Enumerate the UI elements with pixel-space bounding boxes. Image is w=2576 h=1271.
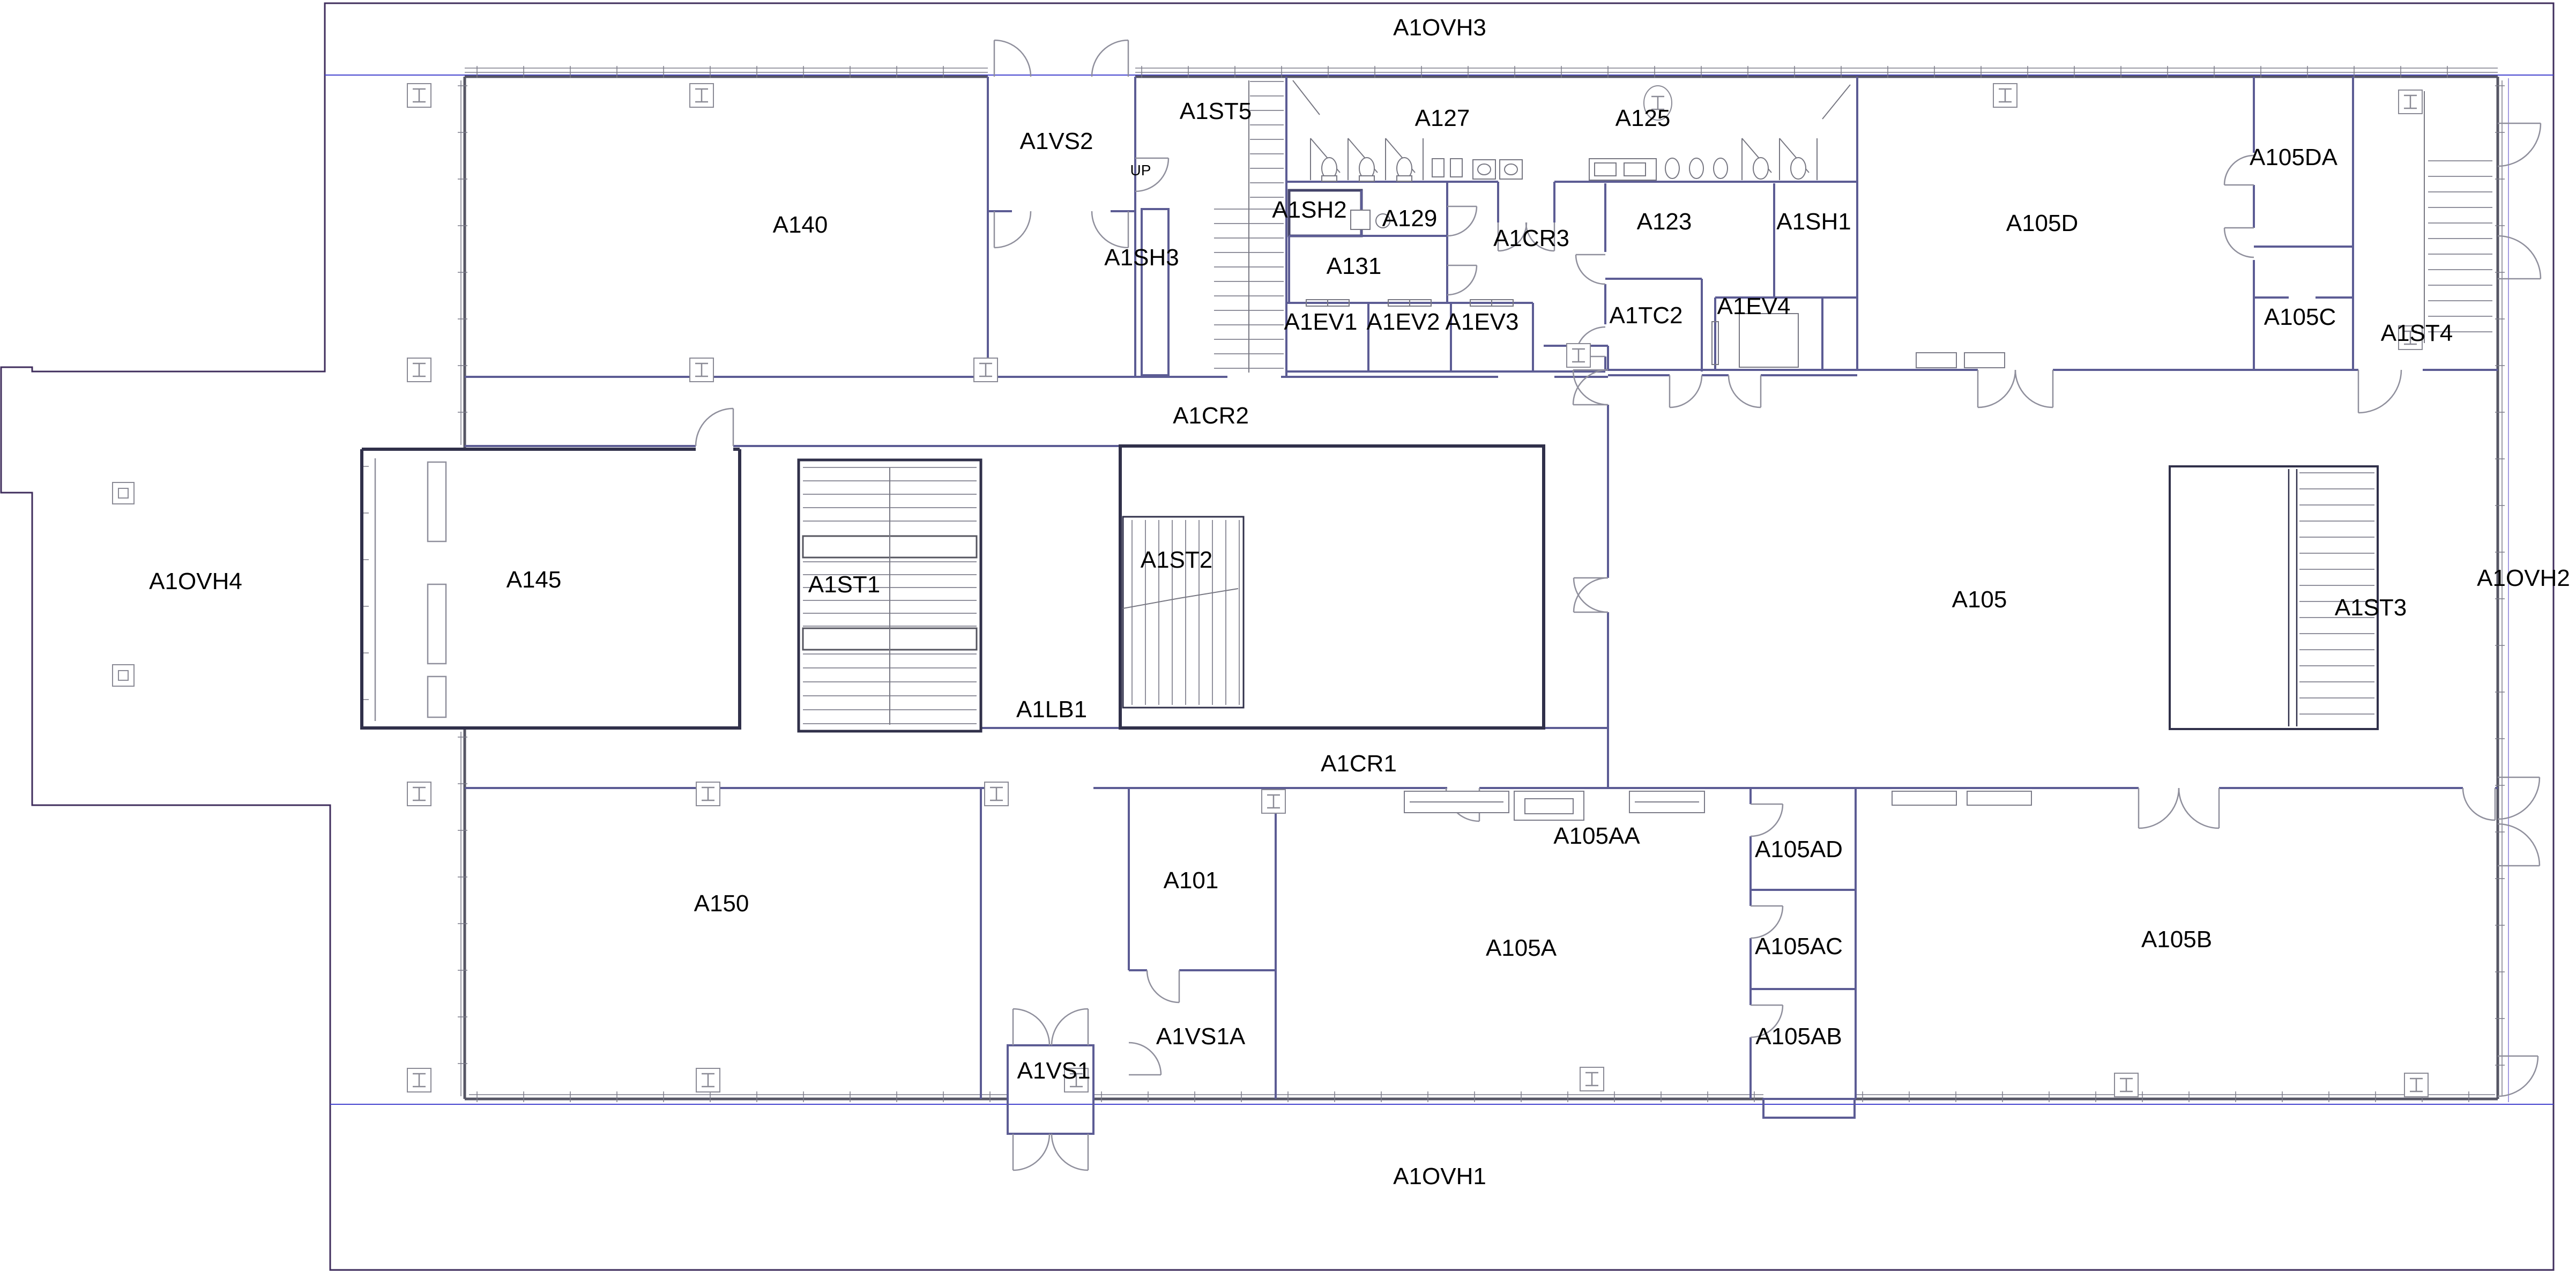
- room-label-a1sh2: A1SH2: [1272, 198, 1346, 222]
- room-label-a105b: A105B: [2141, 928, 2212, 952]
- center-block-outline: [1120, 446, 1544, 728]
- room-label-a129: A129: [1382, 207, 1438, 231]
- room-label-a1ev1: A1EV1: [1284, 310, 1358, 334]
- room-label-a1sh1: A1SH1: [1776, 210, 1851, 234]
- room-label-a125: A125: [1615, 107, 1671, 130]
- floor-plan-drawing: [0, 0, 2576, 1271]
- room-label-a1ev4: A1EV4: [1717, 295, 1791, 318]
- room-label-a1st5: A1ST5: [1180, 100, 1252, 123]
- door-swings: [696, 40, 2541, 1170]
- room-label-a105d: A105D: [2006, 212, 2079, 235]
- room-label-a1cr1: A1CR1: [1321, 752, 1397, 776]
- room-label-a140: A140: [773, 213, 828, 237]
- room-label-a1tc2: A1TC2: [1610, 304, 1683, 328]
- room-label-a1st4: A1ST4: [2381, 322, 2453, 345]
- room-label-a105da: A105DA: [2250, 146, 2337, 169]
- room-label-a105c: A105C: [2264, 306, 2336, 329]
- room-label-a105a: A105A: [1486, 936, 1557, 960]
- room-label-a101: A101: [1164, 869, 1219, 893]
- room-label-a1vs2: A1VS2: [1020, 130, 1093, 153]
- room-label-a1cr3: A1CR3: [1493, 227, 1569, 250]
- room-label-a127: A127: [1415, 107, 1470, 130]
- steel-column-symbols: [113, 84, 2428, 1097]
- room-label-a1st2: A1ST2: [1141, 548, 1213, 572]
- room-label-a1cr2: A1CR2: [1173, 404, 1249, 428]
- room-label-a1vs1a: A1VS1A: [1156, 1025, 1245, 1049]
- casework: [1404, 353, 2031, 820]
- room-label-a131: A131: [1327, 255, 1382, 278]
- room-label-a1ovh2: A1OVH2: [2477, 567, 2570, 590]
- overhang-guide-lines: [325, 75, 2553, 1104]
- restroom-fixtures: [1293, 80, 1850, 229]
- room-label-a123: A123: [1637, 210, 1692, 234]
- room-label-a105: A105: [1952, 588, 2007, 612]
- room-label-a150: A150: [694, 892, 749, 916]
- room-label-up-note: UP: [1130, 163, 1151, 178]
- interior-walls: [465, 77, 2498, 1134]
- room-label-a1ovh1: A1OVH1: [1393, 1165, 1486, 1188]
- a145-casework: [375, 458, 446, 721]
- room-label-a105ab: A105AB: [1755, 1025, 1842, 1049]
- room-label-a105ad: A105AD: [1755, 838, 1843, 861]
- heavy-blocks: [362, 446, 2378, 731]
- room-label-a1st3: A1ST3: [2335, 596, 2407, 620]
- floor-plan-canvas: A1OVH3A1VS2A1ST5A127A125A105DAA140A1SH2A…: [0, 0, 2576, 1271]
- room-label-a1ev3: A1EV3: [1446, 310, 1519, 334]
- room-label-a1st1: A1ST1: [808, 573, 881, 597]
- room-label-a1vs1: A1VS1: [1017, 1059, 1091, 1083]
- room-label-a1ovh3: A1OVH3: [1393, 16, 1486, 40]
- room-label-a1lb1: A1LB1: [1016, 698, 1087, 722]
- room-label-a105ac: A105AC: [1755, 935, 1843, 958]
- room-label-a1sh3: A1SH3: [1104, 246, 1179, 270]
- room-label-a145: A145: [507, 568, 562, 592]
- room-label-a1ovh4: A1OVH4: [149, 570, 242, 593]
- room-label-a1ev2: A1EV2: [1367, 310, 1440, 334]
- room-label-a105aa: A105AA: [1553, 824, 1640, 848]
